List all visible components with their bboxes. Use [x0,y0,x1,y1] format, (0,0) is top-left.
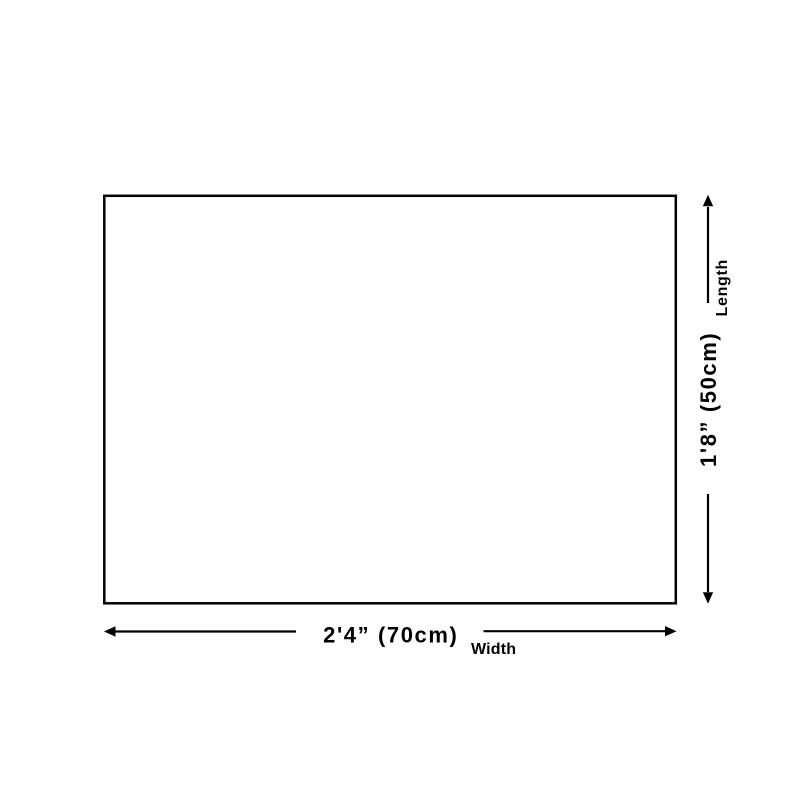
svg-text:Width: Width [471,641,516,658]
svg-text:1'8” (50cm): 1'8” (50cm) [696,332,721,467]
svg-text:Length: Length [714,259,731,317]
svg-text:2'4” (70cm): 2'4” (70cm) [323,623,458,648]
